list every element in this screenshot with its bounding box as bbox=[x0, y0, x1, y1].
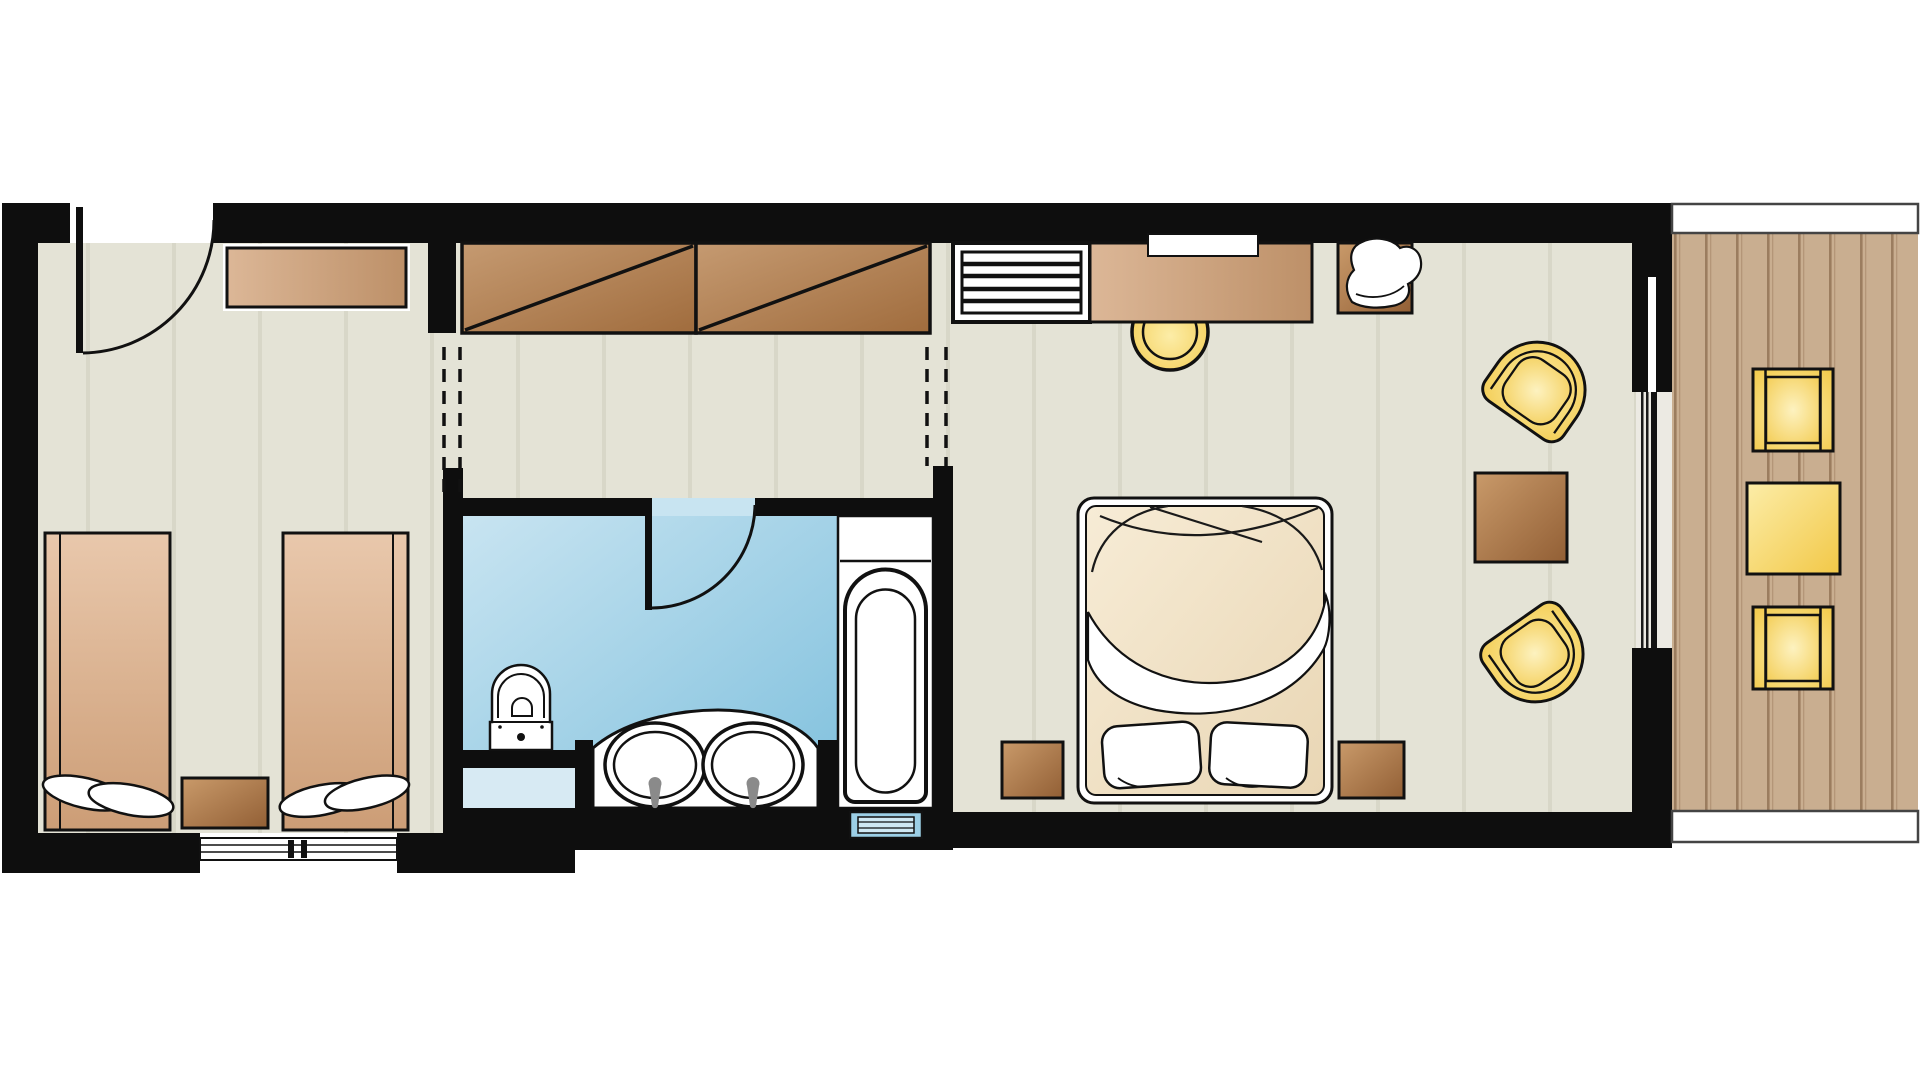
glass-door-panel bbox=[1651, 392, 1657, 648]
wall-bath-top-left bbox=[443, 498, 645, 516]
glass-pane-line bbox=[1641, 392, 1644, 648]
tv-niche bbox=[1148, 234, 1258, 256]
twin-bed-left bbox=[40, 533, 176, 830]
wall-toilet-half bbox=[443, 750, 575, 768]
corner-armchair bbox=[1338, 239, 1421, 313]
balcony-chair-bottom bbox=[1753, 607, 1833, 689]
entry-door-leaf bbox=[76, 207, 83, 353]
wall-bath-left bbox=[443, 468, 463, 850]
luggage-rack bbox=[953, 243, 1090, 322]
bathroom-niche-floor bbox=[463, 768, 575, 808]
glass-door-pocket bbox=[1648, 277, 1656, 392]
hallway bbox=[462, 243, 930, 333]
floor-plan-svg bbox=[0, 0, 1920, 1080]
wall-twinroom-right bbox=[428, 203, 456, 333]
balcony-chair-seat bbox=[1766, 377, 1820, 443]
toilet-flush-dot bbox=[517, 733, 525, 741]
sliding-window bbox=[200, 838, 397, 860]
toilet-bolt bbox=[498, 725, 502, 729]
pillow-right bbox=[1208, 722, 1308, 789]
wall-bath-bedroom bbox=[933, 466, 953, 850]
window-mullion bbox=[301, 840, 307, 858]
bedside-table bbox=[182, 778, 268, 828]
toilet-bolt bbox=[540, 725, 544, 729]
luggage-rack-top bbox=[962, 252, 1081, 313]
twin-bed-right bbox=[277, 533, 412, 830]
nightstand-right bbox=[1339, 742, 1404, 798]
bathroom-door-leaf bbox=[645, 498, 652, 610]
bathroom-door-threshold bbox=[645, 498, 755, 516]
wall-left bbox=[2, 203, 38, 873]
wall-bath-top-right bbox=[755, 498, 953, 516]
wall-bedroom-bottom bbox=[953, 812, 1636, 848]
window-frame bbox=[200, 838, 397, 860]
pillow-left bbox=[1101, 721, 1202, 790]
toilet bbox=[490, 665, 552, 750]
wall-console bbox=[227, 248, 406, 307]
bathtub-area bbox=[840, 561, 931, 838]
floor-plan-canvas bbox=[0, 0, 1920, 1080]
wall-bath-bottom-deep bbox=[443, 808, 575, 873]
wall-bottom-left bbox=[2, 833, 200, 873]
railing-top bbox=[1672, 204, 1918, 233]
coffee-table bbox=[1475, 473, 1567, 562]
nightstand-left bbox=[1002, 742, 1063, 798]
glass-pane-line bbox=[1646, 392, 1649, 648]
wall-vanity-right-stub bbox=[818, 740, 838, 810]
balcony-chair-seat bbox=[1766, 615, 1820, 681]
double-bed bbox=[1078, 498, 1332, 803]
wall-right-bottom bbox=[1632, 648, 1672, 848]
window-mullion bbox=[288, 840, 294, 858]
balcony-table bbox=[1747, 483, 1840, 574]
bath-step-inner bbox=[858, 817, 914, 833]
balcony-chair-top bbox=[1753, 369, 1833, 451]
balcony bbox=[1672, 204, 1918, 842]
railing-bottom bbox=[1672, 811, 1918, 842]
